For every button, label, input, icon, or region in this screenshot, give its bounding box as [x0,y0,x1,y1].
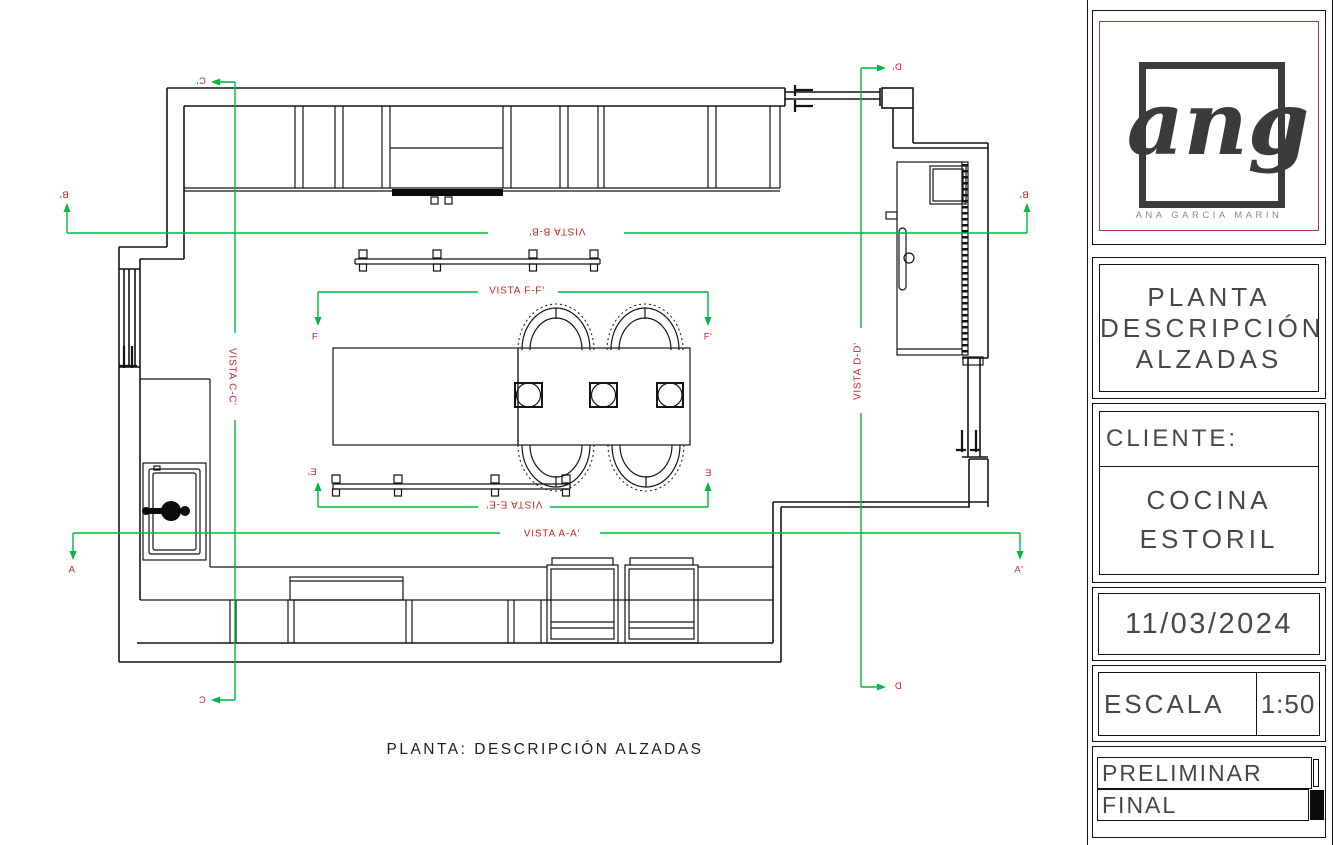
marker-c-top: C' [196,75,206,86]
marker-a-right: A' [1014,565,1023,576]
client-label: CLIENTE: [1100,412,1318,467]
marker-f-left: F [312,332,318,343]
marker-d-bottom: D [894,680,901,691]
section-markers: B' B' A A' C' C D' D E' E F F' [59,61,1028,705]
marker-e-right: E [705,467,712,478]
dining-table [518,348,690,445]
scale-cell: ESCALA 1:50 [1092,665,1326,742]
marker-a-left: A [69,565,76,576]
hob-bar [392,189,503,196]
top-cabinets [184,106,780,204]
logo-script: ang [1118,68,1318,178]
door-jamb [882,88,913,108]
section-line-dd [861,68,883,687]
section-line-ff [318,292,708,322]
client-cell: CLIENTE: COCINA ESTORIL [1092,403,1326,583]
scale-value: 1:50 [1257,673,1319,735]
marker-c-bottom: C [198,694,205,705]
hinge-marks [119,85,980,452]
view-label-bb: VISTA B-B' [529,226,586,237]
island [333,348,518,445]
view-labels: VISTA B-B' VISTA A-A' VISTA C-C' VISTA D… [227,226,864,540]
left-wall-window [119,269,140,367]
scale-label: ESCALA [1099,673,1257,735]
sheet-title-cell: PLANTA DESCRIPCIÓN ALZADAS [1092,257,1326,399]
sheet-title-line2: DESCRIPCIÓN [1100,313,1318,344]
fridge-handle [899,228,906,290]
date-value: 11/03/2024 [1098,593,1320,655]
tall-unit-fridge [886,162,983,365]
chair [608,445,684,491]
status-final-checkbox [1310,790,1324,820]
scale-box: ESCALA 1:50 [1098,672,1320,736]
client-name: COCINA ESTORIL [1100,466,1318,574]
track-bar-upper [355,250,600,271]
view-label-aa: VISTA A-A' [524,529,580,540]
status-preliminar-checkbox [1313,759,1319,787]
status-final: FINAL [1097,789,1309,821]
sheet-title-line1: PLANTA [1100,282,1318,313]
marker-b-left: B' [59,189,68,200]
hob-knob [431,197,438,204]
view-label-ff: VISTA F-F' [489,286,545,297]
right-wall-window [773,143,988,662]
view-label-dd: VISTA D-D' [853,342,864,400]
client-box: CLIENTE: COCINA ESTORIL [1099,411,1319,575]
marker-b-right: B' [1019,189,1028,200]
hob-knob [445,197,452,204]
marker-f-right: F' [704,332,713,343]
marker-e-left: E' [307,466,316,477]
title-block-logo-cell: ang ANA GARCIA MARIN [1092,10,1326,245]
logo-subtext: ANA GARCIA MARIN [1100,210,1318,221]
view-label-cc: VISTA C-C' [227,348,238,406]
sheet-title-box: PLANTA DESCRIPCIÓN ALZADAS [1099,264,1319,392]
marker-d-top: D' [892,61,902,72]
chair [607,304,683,350]
client-name-line1: COCINA [1100,481,1318,520]
sink-column [140,379,210,567]
sheet-title-line3: ALZADAS [1100,344,1318,375]
chair [518,304,594,350]
date-cell: 11/03/2024 [1092,587,1326,661]
view-label-ee: VISTA E-E' [486,499,543,510]
logo-red-frame: ang ANA GARCIA MARIN [1099,21,1319,231]
island-table [333,348,690,445]
plan-caption: PLANTA: DESCRIPCIÓN ALZADAS [387,741,704,758]
status-preliminar: PRELIMINAR [1097,757,1312,789]
client-name-line2: ESTORIL [1100,520,1318,559]
drawing-sheet: { "drawing": { "caption": "PLANTA: DESCR… [0,0,1337,845]
